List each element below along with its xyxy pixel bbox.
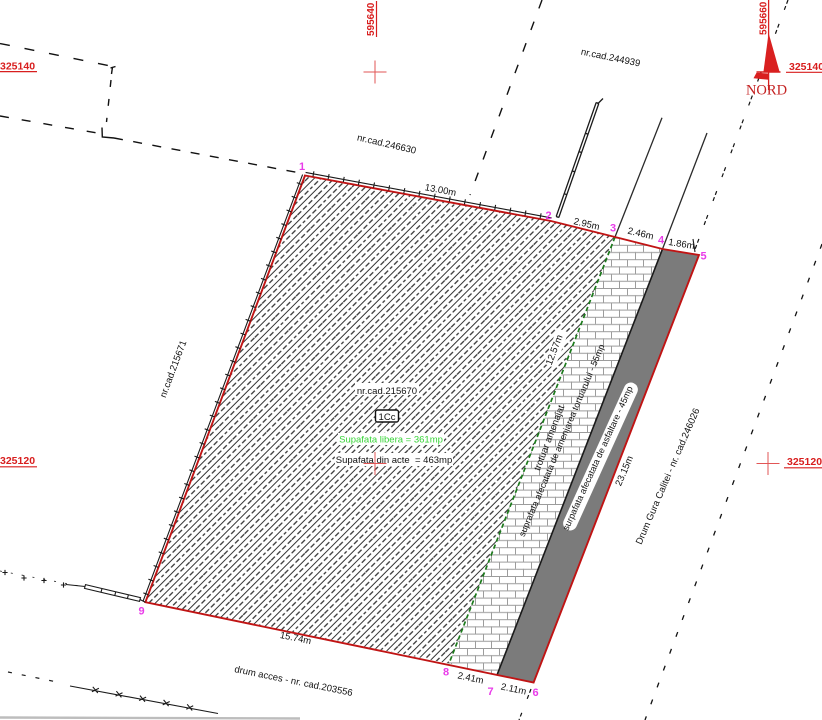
svg-text:2: 2: [545, 210, 551, 222]
svg-text:Supafata din acte = 463mp: Supafata din acte = 463mp: [336, 455, 452, 466]
svg-text:6: 6: [533, 687, 539, 699]
svg-text:Supafata libera = 361mp: Supafata libera = 361mp: [339, 435, 443, 446]
svg-text:9: 9: [139, 606, 145, 618]
svg-text:325140: 325140: [0, 61, 35, 73]
svg-text:8: 8: [443, 667, 449, 679]
svg-text:nr.cad.215670: nr.cad.215670: [357, 386, 417, 397]
svg-text:1Cc: 1Cc: [379, 412, 396, 423]
svg-text:3: 3: [610, 223, 616, 235]
svg-text:7: 7: [487, 686, 493, 698]
svg-text:595660: 595660: [759, 1, 770, 35]
svg-text:4: 4: [658, 235, 665, 247]
svg-text:325120: 325120: [787, 456, 822, 468]
svg-text:325120: 325120: [0, 455, 35, 467]
svg-text:325140: 325140: [789, 61, 822, 73]
svg-text:595640: 595640: [366, 2, 377, 36]
svg-text:NORD: NORD: [746, 83, 787, 99]
svg-text:1: 1: [299, 161, 305, 173]
svg-text:5: 5: [700, 251, 706, 263]
